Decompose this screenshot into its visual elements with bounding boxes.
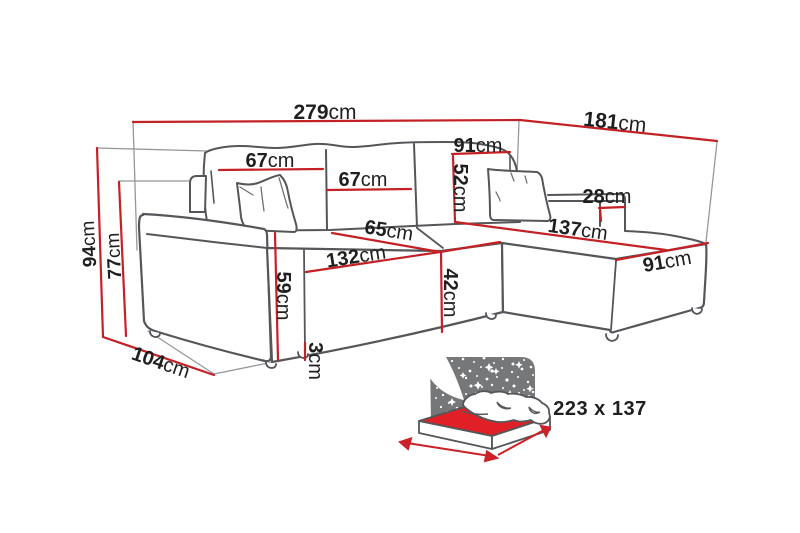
svg-text:59cm: 59cm [272,272,294,321]
svg-text:52cm: 52cm [449,164,471,213]
svg-text:3cm: 3cm [304,342,326,380]
svg-text:279cm: 279cm [293,101,356,124]
svg-text:223 x 137: 223 x 137 [553,398,646,420]
svg-text:77cm: 77cm [103,232,126,280]
svg-text:42cm: 42cm [439,269,461,318]
svg-text:91cm: 91cm [454,135,503,157]
svg-text:67cm: 67cm [339,169,388,191]
svg-text:28cm: 28cm [583,186,632,208]
svg-text:67cm: 67cm [246,150,295,172]
svg-text:94cm: 94cm [78,220,101,268]
